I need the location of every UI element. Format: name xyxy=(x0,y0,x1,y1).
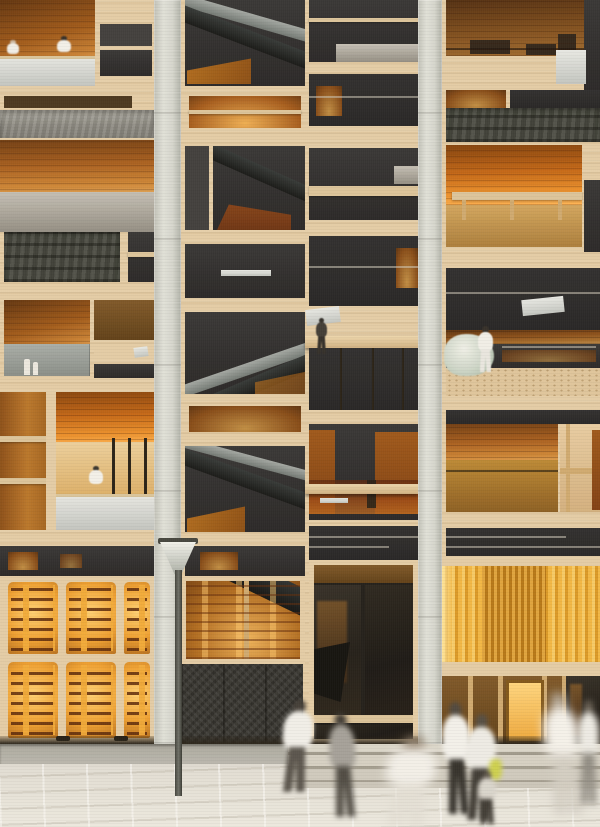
plaza-steps xyxy=(288,744,600,788)
stair-cell-3 xyxy=(185,312,305,394)
white-table xyxy=(320,498,348,503)
ledge-line xyxy=(309,96,418,98)
rail-line xyxy=(309,546,389,548)
left-room3-ceiling xyxy=(4,300,90,348)
glow-glint xyxy=(316,86,342,116)
top-right-room xyxy=(446,0,584,56)
dark-stone-band-right xyxy=(446,108,600,142)
transom xyxy=(314,565,413,583)
sidewalk-strip xyxy=(0,744,303,764)
white-object xyxy=(133,346,148,358)
rail-post xyxy=(462,200,466,220)
glow-screen-cell xyxy=(124,662,150,738)
glow-glint xyxy=(396,248,418,288)
mullion xyxy=(468,676,473,744)
rail-line xyxy=(309,536,418,538)
glow-glint xyxy=(8,552,38,570)
under-band-slot xyxy=(4,96,132,108)
furniture xyxy=(526,44,556,55)
mid-dark-band-3 xyxy=(309,526,418,560)
warm-reflection xyxy=(570,684,582,736)
left-room2-ceiling xyxy=(0,140,154,196)
white-table-sliver xyxy=(221,270,271,276)
living-room-shelf xyxy=(0,392,46,530)
mid-dark-band-1 xyxy=(309,74,418,126)
ground-stair-flight xyxy=(181,576,305,642)
street-lamp-pole xyxy=(175,570,182,796)
landing-glow xyxy=(187,502,245,532)
storefront-mid xyxy=(309,560,418,744)
concrete-band-left xyxy=(0,110,154,138)
mid-dark-cell-2 xyxy=(309,148,418,220)
stone-band-side xyxy=(128,232,154,282)
balcony-rail-mid xyxy=(305,336,418,348)
rail-line xyxy=(446,470,558,472)
rail-line xyxy=(502,346,596,348)
top-side-slot-a xyxy=(100,24,152,46)
curtain-bright-edge xyxy=(442,566,454,662)
rail-line xyxy=(446,536,566,538)
grand-room-rail xyxy=(452,192,582,200)
white-vase xyxy=(24,359,30,375)
facade-base-shadow xyxy=(0,736,600,744)
white-vase xyxy=(33,362,38,375)
right-room5-floor xyxy=(446,460,558,512)
gray-slab-tr xyxy=(556,50,586,84)
shelf-bar xyxy=(0,436,46,442)
rail-line xyxy=(446,546,600,548)
furniture xyxy=(470,40,510,54)
photo-timber-building-facade xyxy=(0,0,600,827)
rail-post xyxy=(558,200,562,220)
living-room-pier xyxy=(46,392,56,530)
top-left-parapet xyxy=(0,56,95,86)
right-dark-band-2 xyxy=(446,528,600,558)
stair-cell-2 xyxy=(213,146,305,230)
dark-sliver-tr xyxy=(584,0,600,90)
right-dark-strip xyxy=(446,410,600,424)
rail-post xyxy=(372,348,374,410)
shelf-bar xyxy=(0,478,46,484)
glow-screen-cell xyxy=(8,582,58,654)
left-shelf-top xyxy=(94,300,154,340)
warm-reflection xyxy=(502,350,596,362)
left-shelf-mid xyxy=(94,344,154,360)
stair-slot-row xyxy=(185,244,305,298)
stair-cell-1 xyxy=(185,0,305,86)
living-room-parapet xyxy=(56,494,154,530)
curtain-panel-deep xyxy=(482,566,546,662)
mid-dark-band-2 xyxy=(309,236,418,306)
stair-cell-4 xyxy=(185,446,305,532)
glow-screen-cell xyxy=(66,582,116,654)
glowing-door xyxy=(506,680,544,744)
balcony-rail-mid-2 xyxy=(305,484,418,494)
right-glass xyxy=(566,676,600,744)
roof-wedge xyxy=(217,196,291,230)
glow-screen-cell xyxy=(66,662,116,738)
glow-screen-cell xyxy=(8,662,58,738)
concrete-pilaster-right xyxy=(418,0,442,744)
stone-band-left xyxy=(4,232,120,282)
glow-screen-cell xyxy=(124,582,150,654)
orange-sliver xyxy=(592,430,600,510)
landing-glow xyxy=(187,54,251,84)
rail-post xyxy=(510,200,514,220)
under-balcony xyxy=(309,348,418,410)
lit-slot-right xyxy=(446,90,506,108)
ledge-line xyxy=(309,266,418,268)
mid-dark-cell-1 xyxy=(309,0,418,62)
left-cabinet xyxy=(4,344,90,376)
mullion xyxy=(498,676,503,744)
ledge xyxy=(309,18,418,22)
stair-glass-ground xyxy=(181,576,305,664)
timber-band-right xyxy=(442,662,600,676)
shelf-ledge xyxy=(128,252,154,257)
gray-bit xyxy=(394,166,418,184)
stair-side-slot xyxy=(185,146,209,230)
stair-lit-slot xyxy=(189,96,301,128)
shelf xyxy=(309,186,418,196)
glow-glint xyxy=(60,554,82,568)
dark-sliver-r2 xyxy=(584,180,600,252)
curtain-wall xyxy=(442,566,600,662)
mid-rail xyxy=(314,715,413,723)
gray-slab xyxy=(336,44,418,62)
left-shelf-low xyxy=(94,364,154,378)
shelf-line xyxy=(189,110,301,114)
glass-mullion xyxy=(244,581,249,659)
right-room5-ceiling xyxy=(446,424,558,464)
stair-flight xyxy=(213,146,305,205)
right-pale-room xyxy=(560,424,600,512)
glass-pane xyxy=(365,585,413,715)
stone-wall xyxy=(181,664,303,744)
rail-post xyxy=(402,348,404,410)
red-room xyxy=(309,424,418,520)
curtain-lintel xyxy=(442,556,600,566)
top-left-room-ceiling xyxy=(0,0,95,64)
right-dark-band xyxy=(446,268,600,330)
shop-screen-frame xyxy=(0,576,154,744)
left-room2-parapet xyxy=(0,192,154,232)
facade xyxy=(0,0,600,744)
stair-lit-slot-2 xyxy=(189,406,301,432)
white-roof-piece xyxy=(305,306,341,326)
bedding-fabric xyxy=(444,334,494,376)
stair-slot-row-2 xyxy=(185,546,305,576)
rail-post xyxy=(340,348,342,410)
top-side-slot-b xyxy=(100,50,152,76)
shop-lower-right xyxy=(442,676,600,744)
dark-slot-right xyxy=(510,90,600,108)
ledge-line xyxy=(446,292,600,294)
glow-glint xyxy=(200,552,238,570)
left-dark-row xyxy=(0,546,154,576)
white-angled-piece xyxy=(521,296,564,316)
